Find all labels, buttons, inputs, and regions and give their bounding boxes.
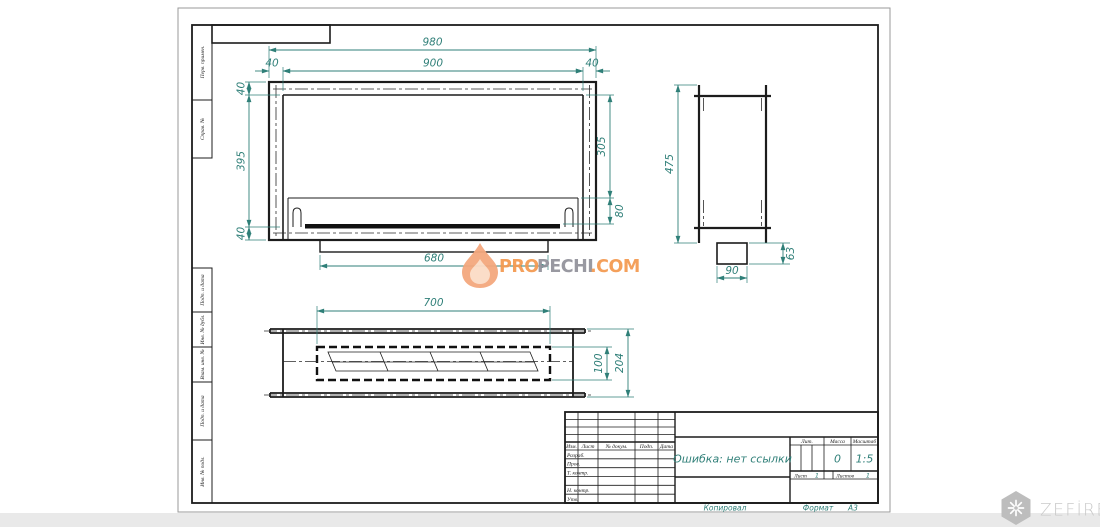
tb-masshtab: Масштаб [852, 438, 877, 445]
dim-inner-height: 395 [236, 151, 248, 171]
margin-label-vzam-inv: Взам. инв. № [200, 349, 206, 379]
margin-label-inv-dubl: Инв. № дубл. [199, 315, 206, 346]
dim-offset-right: 40 [585, 58, 599, 70]
tb-row-prov: Пров. [566, 462, 580, 468]
watermark-com: .COM [590, 257, 640, 277]
tb-col-izm: Изм. [565, 444, 577, 450]
dim-duct-width: 90 [725, 265, 739, 277]
dim-overall-width: 980 [422, 37, 442, 49]
tb-listov-label: Листов [835, 474, 855, 480]
tb-list-label: Лист [793, 474, 807, 480]
tb-designation: Ошибка: нет ссылки [673, 453, 792, 466]
margin-label-inv-podl: Инв. № подл. [199, 456, 206, 487]
zefire-logo: ZEFİRE [1002, 491, 1100, 525]
tb-lit: Лит. [800, 439, 813, 445]
tb-row-razrab: Разраб. [566, 452, 585, 459]
tb-col-data: Дата [659, 444, 673, 450]
kopiroval-note: Копировал [704, 504, 747, 513]
tb-col-list: Лист [581, 444, 595, 450]
dim-tray-height: 80 [614, 204, 626, 218]
tb-row-nkontr: Н. контр. [566, 488, 590, 494]
dim-burner-length: 680 [424, 253, 444, 265]
dim-frame-bottom: 40 [236, 227, 248, 241]
margin-label-perv-primen: Перв. примен. [200, 46, 206, 80]
tb-listov-value: 1 [866, 472, 870, 480]
zefire-wordmark: ZEFİRE [1040, 500, 1100, 521]
dim-side-height: 475 [664, 154, 676, 174]
page-background-strip [0, 513, 1100, 527]
dim-opening-depth: 100 [593, 353, 605, 373]
drawing-viewer: Перв. примен. Справ. № Подп. и дата Инв.… [0, 0, 1100, 527]
dim-offset-left: 40 [265, 58, 279, 70]
tb-row-utv: Утв. [567, 497, 578, 503]
burner-line [305, 224, 560, 229]
format-value: А3 [847, 504, 858, 513]
dim-opening-length: 700 [423, 297, 443, 309]
watermark-pro: PRO [499, 257, 539, 277]
tb-massa: Масса [829, 439, 845, 445]
tb-list-value: 1 [815, 472, 819, 480]
tb-massa-value: 0 [834, 453, 841, 466]
tb-col-podp: Подп. [639, 443, 654, 450]
format-label: Формат [803, 504, 834, 513]
tb-masshtab-value: 1:5 [856, 453, 874, 466]
dim-depth: 204 [614, 353, 626, 373]
dim-opening-height: 305 [596, 136, 608, 156]
tb-col-doc: № докум. [605, 443, 628, 450]
tb-row-tkontr: Т. контр. [567, 470, 588, 476]
dim-inner-width: 900 [423, 58, 443, 70]
margin-label-podp-data-2: Подп. и дата [199, 395, 206, 428]
dim-duct-height: 63 [785, 247, 797, 260]
margin-label-podp-data-1: Подп. и дата [199, 274, 206, 307]
dim-frame-top: 40 [236, 82, 248, 96]
watermark-pechi: PECHI [537, 257, 593, 277]
margin-label-sprav: Справ. № [200, 118, 206, 140]
